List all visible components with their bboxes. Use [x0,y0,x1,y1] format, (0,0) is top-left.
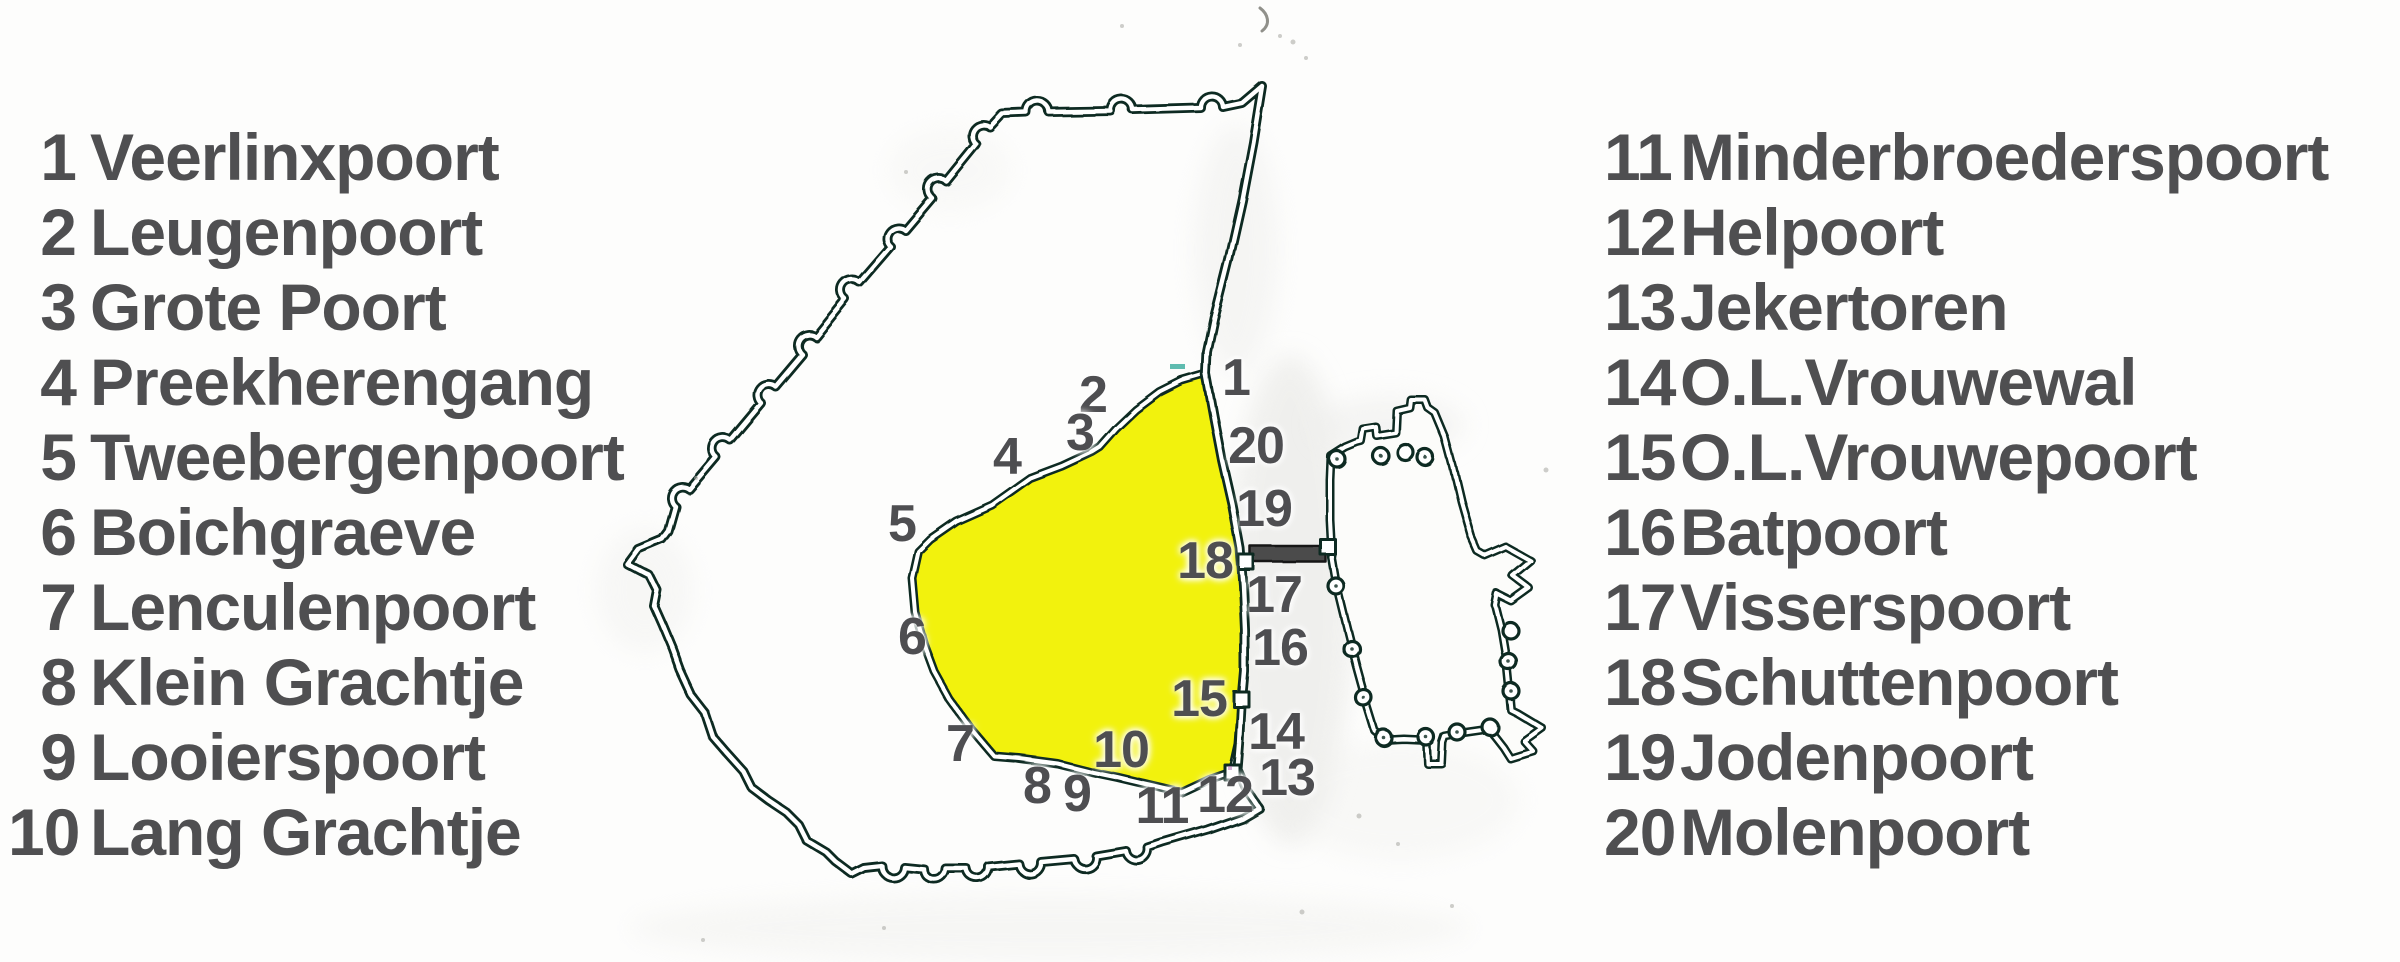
tower-ring [1482,719,1498,735]
legend-number: 6 [8,495,76,570]
bridge [1250,546,1326,562]
legend-gate-name: Schuttenpoort [1680,645,2118,720]
map-number-label: 20 [1228,416,1284,476]
legend-gate-name: Lenculenpoort [90,570,535,645]
legend-gate-name: Visserspoort [1680,570,2070,645]
legend-gate-name: Batpoort [1680,495,1947,570]
legend-item-6: 6Boichgraeve [8,495,624,570]
map-number-label: 17 [1246,565,1302,625]
legend-number: 2 [8,195,76,270]
legend-number: 13 [1604,270,1666,345]
map-number-label: 5 [888,494,916,554]
legend-item-17: 17Visserspoort [1604,570,2328,645]
legend-item-19: 19Jodenpoort [1604,720,2328,795]
legend-number: 1 [8,120,76,195]
map-number-label: 19 [1236,479,1292,539]
legend-item-20: 20Molenpoort [1604,795,2328,870]
legend-number: 15 [1604,420,1666,495]
legend-gate-name: Minderbroederspoort [1680,120,2328,195]
legend-gate-name: Preekherengang [90,345,593,420]
map-number-label: 3 [1066,403,1094,463]
east-enclosure-wall [1330,400,1542,763]
legend-number: 19 [1604,720,1666,795]
legend-right-column: 11Minderbroederspoort 12Helpoort 13Jeker… [1604,120,2328,870]
legend-number: 5 [8,420,76,495]
legend-gate-name: Jodenpoort [1680,720,2033,795]
legend-number: 8 [8,645,76,720]
legend-item-4: 4Preekherengang [8,345,624,420]
legend-item-12: 12Helpoort [1604,195,2328,270]
legend-item-8: 8Klein Grachtje [8,645,624,720]
legend-item-13: 13Jekertoren [1604,270,2328,345]
legend-item-2: 2Leugenpoort [8,195,624,270]
map-number-label: 7 [946,714,974,774]
legend-gate-name: Helpoort [1680,195,1943,270]
legend-gate-name: Boichgraeve [90,495,475,570]
legend-number: 7 [8,570,76,645]
legend-gate-name: O.L.Vrouwepoort [1680,420,2197,495]
scanned-map-page: 1 2 3 4 5 6 7 8 9 10 11 12 13 14 15 16 1… [0,0,2400,962]
legend-item-1: 1Veerlinxpoort [8,120,624,195]
teal-scan-artifact [1170,364,1185,369]
legend-number: 14 [1604,345,1666,420]
legend-number: 12 [1604,195,1666,270]
legend-number: 20 [1604,795,1666,870]
legend-item-15: 15O.L.Vrouwepoort [1604,420,2328,495]
legend-gate-name: Leugenpoort [90,195,482,270]
map-number-label: 8 [1023,756,1051,816]
legend-number: 17 [1604,570,1666,645]
map-number-label: 12 [1197,765,1253,825]
legend-number: 10 [8,795,76,870]
legend-number: 4 [8,345,76,420]
legend-item-10: 10Lang Grachtje [8,795,624,870]
legend-gate-name: Klein Grachtje [90,645,523,720]
legend-item-5: 5Tweebergenpoort [8,420,624,495]
map-number-label: 15 [1171,669,1227,729]
legend-item-14: 14O.L.Vrouwewal [1604,345,2328,420]
legend-gate-name: O.L.Vrouwewal [1680,345,2136,420]
legend-gate-name: Grote Poort [90,270,446,345]
map-number-label: 10 [1093,720,1149,780]
legend-left-column: 1Veerlinxpoort 2Leugenpoort 3Grote Poort… [8,120,624,870]
tower-ring [1502,622,1518,638]
legend-item-7: 7Lenculenpoort [8,570,624,645]
map-number-label: 14 [1248,702,1304,762]
map-number-label: 4 [993,427,1021,487]
legend-gate-name: Veerlinxpoort [90,120,499,195]
legend-number: 9 [8,720,76,795]
legend-number: 16 [1604,495,1666,570]
legend-gate-name: Molenpoort [1680,795,2029,870]
legend-gate-name: Jekertoren [1680,270,2008,345]
legend-item-9: 9Looierspoort [8,720,624,795]
legend-number: 3 [8,270,76,345]
legend-item-16: 16Batpoort [1604,495,2328,570]
legend-item-11: 11Minderbroederspoort [1604,120,2328,195]
map-number-label: 18 [1177,531,1233,591]
legend-number: 11 [1604,120,1666,195]
legend-item-3: 3Grote Poort [8,270,624,345]
legend-gate-name: Tweebergenpoort [90,420,624,495]
legend-item-18: 18Schuttenpoort [1604,645,2328,720]
tower-ring [1398,445,1414,461]
legend-gate-name: Lang Grachtje [90,795,521,870]
map-number-label: 6 [898,607,926,667]
map-number-label: 9 [1063,764,1091,824]
map-number-label: 11 [1136,776,1189,836]
map-number-label: 1 [1222,348,1250,408]
legend-gate-name: Looierspoort [90,720,485,795]
top-squiggle-artifact [1260,8,1268,31]
map-number-label: 16 [1252,618,1308,678]
legend-number: 18 [1604,645,1666,720]
gate-square-bridge-east [1321,540,1336,555]
